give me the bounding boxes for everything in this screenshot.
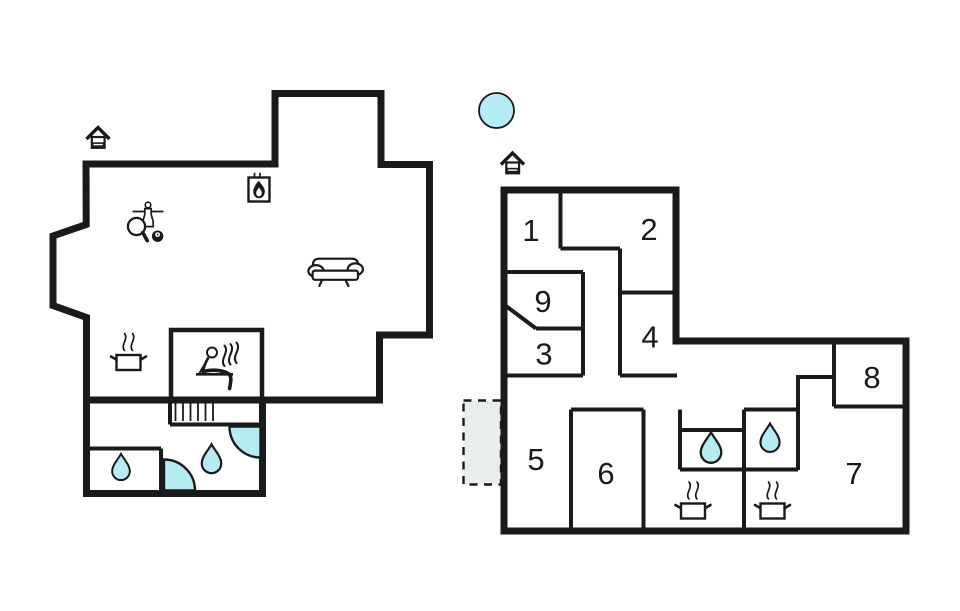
room-7-label: 7	[845, 456, 862, 491]
floor-plan-canvas: 1 2 3 4 5 6 7 8 9	[0, 0, 960, 611]
room-3-label: 3	[535, 337, 552, 372]
room-9-label: 9	[534, 284, 551, 319]
fireplace-icon	[249, 173, 270, 202]
entrance-icon	[501, 153, 524, 173]
floor-plan-page: 1 2 3 4 5 6 7 8 9	[0, 0, 960, 611]
left-building	[53, 94, 430, 494]
room-2-label: 2	[640, 212, 657, 247]
room-8-label: 8	[863, 360, 880, 395]
room-1-label: 1	[522, 213, 539, 248]
billiard-ball-icon	[152, 231, 163, 242]
right-building: 1 2 3 4 5 6 7 8 9	[464, 93, 907, 531]
room-5-label: 5	[527, 442, 544, 477]
pool-icon	[479, 93, 514, 128]
entrance-icon	[87, 128, 110, 148]
terrace-dashed-area	[464, 401, 502, 485]
room-6-label: 6	[597, 456, 614, 491]
room-4-label: 4	[641, 320, 658, 355]
